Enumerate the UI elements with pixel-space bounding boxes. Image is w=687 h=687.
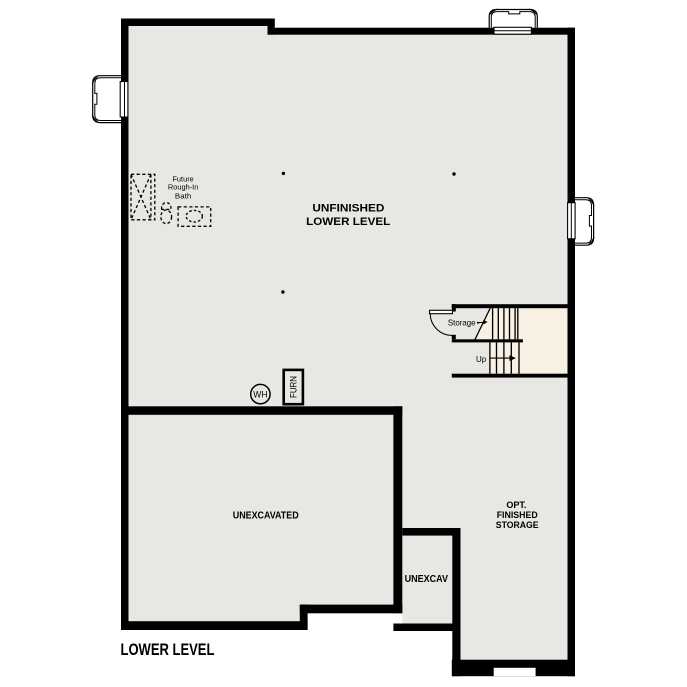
- svg-text:Up: Up: [476, 354, 487, 364]
- svg-text:UNFINISHED: UNFINISHED: [312, 202, 384, 214]
- svg-text:Rough-In: Rough-In: [168, 185, 199, 192]
- svg-text:OPT.: OPT.: [506, 500, 526, 510]
- svg-text:LOWER LEVEL: LOWER LEVEL: [306, 216, 390, 228]
- svg-text:FURN: FURN: [288, 376, 299, 398]
- svg-text:WH: WH: [253, 390, 267, 401]
- svg-text:Storage: Storage: [448, 318, 476, 327]
- svg-text:Future: Future: [172, 176, 194, 183]
- svg-text:UNEXCAV: UNEXCAV: [405, 574, 449, 585]
- svg-text:STORAGE: STORAGE: [496, 520, 539, 530]
- svg-text:FINISHED: FINISHED: [497, 510, 538, 520]
- svg-text:LOWER LEVEL: LOWER LEVEL: [121, 641, 215, 659]
- svg-text:UNEXCAVATED: UNEXCAVATED: [233, 511, 299, 522]
- svg-text:Bath: Bath: [175, 193, 191, 200]
